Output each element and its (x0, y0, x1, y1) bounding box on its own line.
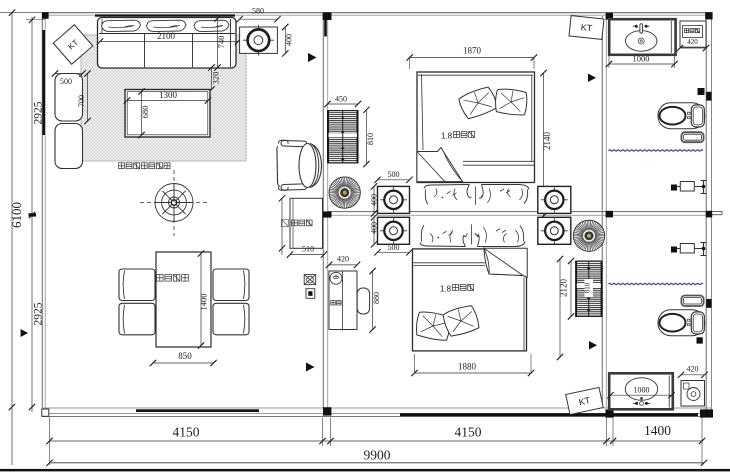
svg-text:320: 320 (211, 72, 221, 85)
svg-text:2140: 2140 (542, 132, 552, 151)
svg-text:580: 580 (252, 7, 264, 16)
svg-text:420: 420 (687, 365, 699, 374)
svg-text:KT: KT (580, 22, 593, 33)
svg-text:810: 810 (366, 133, 375, 145)
svg-text:420: 420 (687, 38, 698, 46)
svg-text:2925: 2925 (33, 101, 45, 124)
svg-text:810: 810 (584, 282, 592, 293)
svg-text:1400: 1400 (199, 294, 209, 311)
svg-text:1400: 1400 (644, 423, 671, 438)
svg-text:450: 450 (335, 95, 347, 104)
svg-text:4150: 4150 (173, 425, 200, 440)
svg-text:700: 700 (77, 95, 86, 107)
svg-text:510: 510 (302, 245, 314, 254)
svg-text:500: 500 (60, 77, 72, 86)
svg-text:1000: 1000 (634, 386, 650, 395)
svg-text:1.8: 1.8 (440, 285, 452, 294)
svg-text:2925: 2925 (33, 302, 45, 325)
svg-text:1000: 1000 (633, 54, 650, 64)
svg-text:500: 500 (388, 170, 400, 179)
svg-text:1300: 1300 (159, 90, 178, 100)
svg-text:850: 850 (178, 351, 192, 361)
svg-text:400: 400 (370, 222, 379, 234)
svg-text:6100: 6100 (9, 202, 24, 228)
svg-text:740: 740 (216, 36, 226, 49)
svg-text:1870: 1870 (463, 46, 482, 56)
svg-text:680: 680 (140, 106, 150, 119)
svg-text:500: 500 (388, 243, 400, 252)
svg-text:1.8: 1.8 (441, 132, 453, 141)
svg-text:2120: 2120 (559, 279, 569, 298)
svg-text:9900: 9900 (364, 447, 391, 462)
svg-text:4150: 4150 (455, 425, 482, 440)
svg-text:400: 400 (285, 34, 294, 46)
svg-text:420: 420 (337, 255, 349, 264)
svg-text:400: 400 (370, 194, 379, 206)
svg-text:1880: 1880 (458, 362, 477, 372)
svg-text:880: 880 (372, 292, 381, 304)
svg-text:2100: 2100 (157, 31, 176, 41)
